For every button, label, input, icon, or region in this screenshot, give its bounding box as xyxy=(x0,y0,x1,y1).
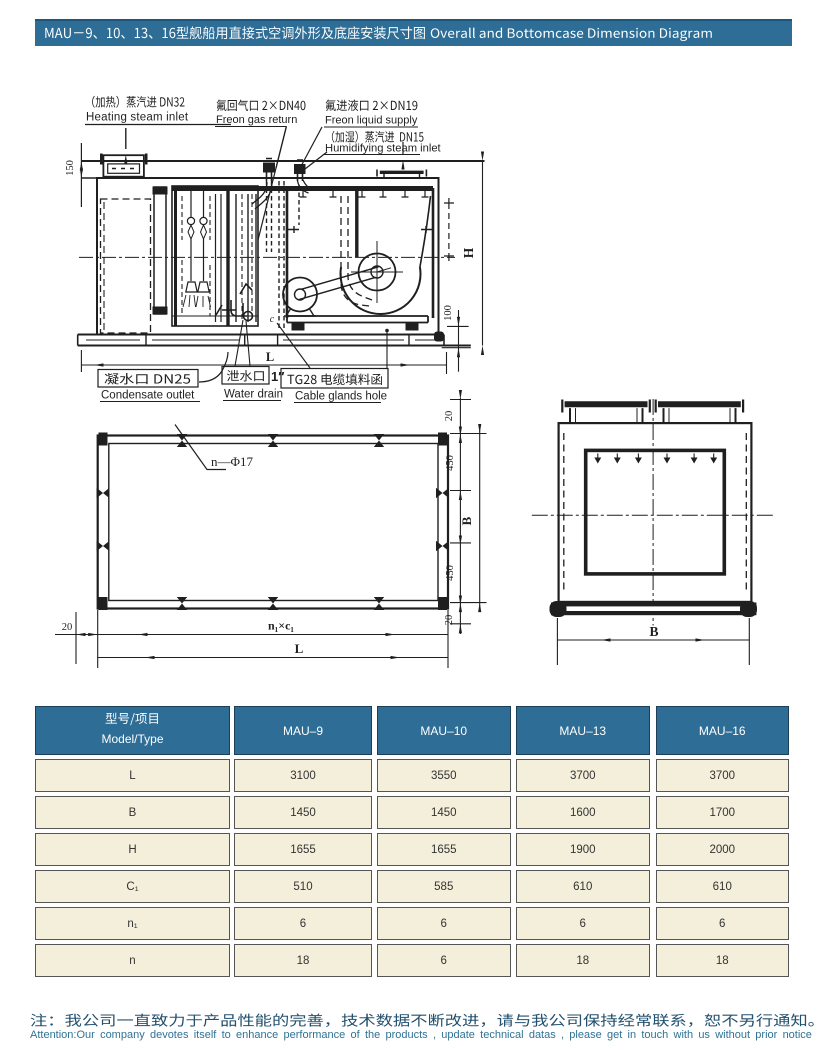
svg-text:Cable glands hole: Cable glands hole xyxy=(295,391,387,403)
svg-text:Condensate outlet: Condensate outlet xyxy=(101,390,195,402)
svg-text:150: 150 xyxy=(65,160,76,176)
svg-text:B: B xyxy=(649,624,658,639)
svg-text:H: H xyxy=(461,247,476,258)
svg-text:n—Φ17: n—Φ17 xyxy=(211,454,254,469)
svg-text:L: L xyxy=(295,641,304,656)
svg-text:450: 450 xyxy=(445,565,456,581)
svg-text:1″: 1″ xyxy=(271,369,284,384)
svg-text:n₁×c₁: n₁×c₁ xyxy=(268,619,294,633)
svg-text:Humidifying steam inlet: Humidifying steam inlet xyxy=(325,143,442,155)
svg-text:100: 100 xyxy=(443,305,454,321)
svg-text:20: 20 xyxy=(444,615,455,626)
svg-text:Freon liquid supply: Freon liquid supply xyxy=(325,115,418,127)
svg-text:B: B xyxy=(459,516,474,525)
svg-text:20: 20 xyxy=(444,411,455,422)
svg-text:Heating steam inlet: Heating steam inlet xyxy=(86,112,189,124)
svg-text:L: L xyxy=(266,350,274,364)
svg-text:Water drain: Water drain xyxy=(224,389,283,401)
svg-text:c: c xyxy=(270,314,275,325)
svg-text:Freon gas return: Freon gas return xyxy=(216,114,297,126)
svg-text:20: 20 xyxy=(62,622,73,633)
svg-text:450: 450 xyxy=(445,455,456,471)
